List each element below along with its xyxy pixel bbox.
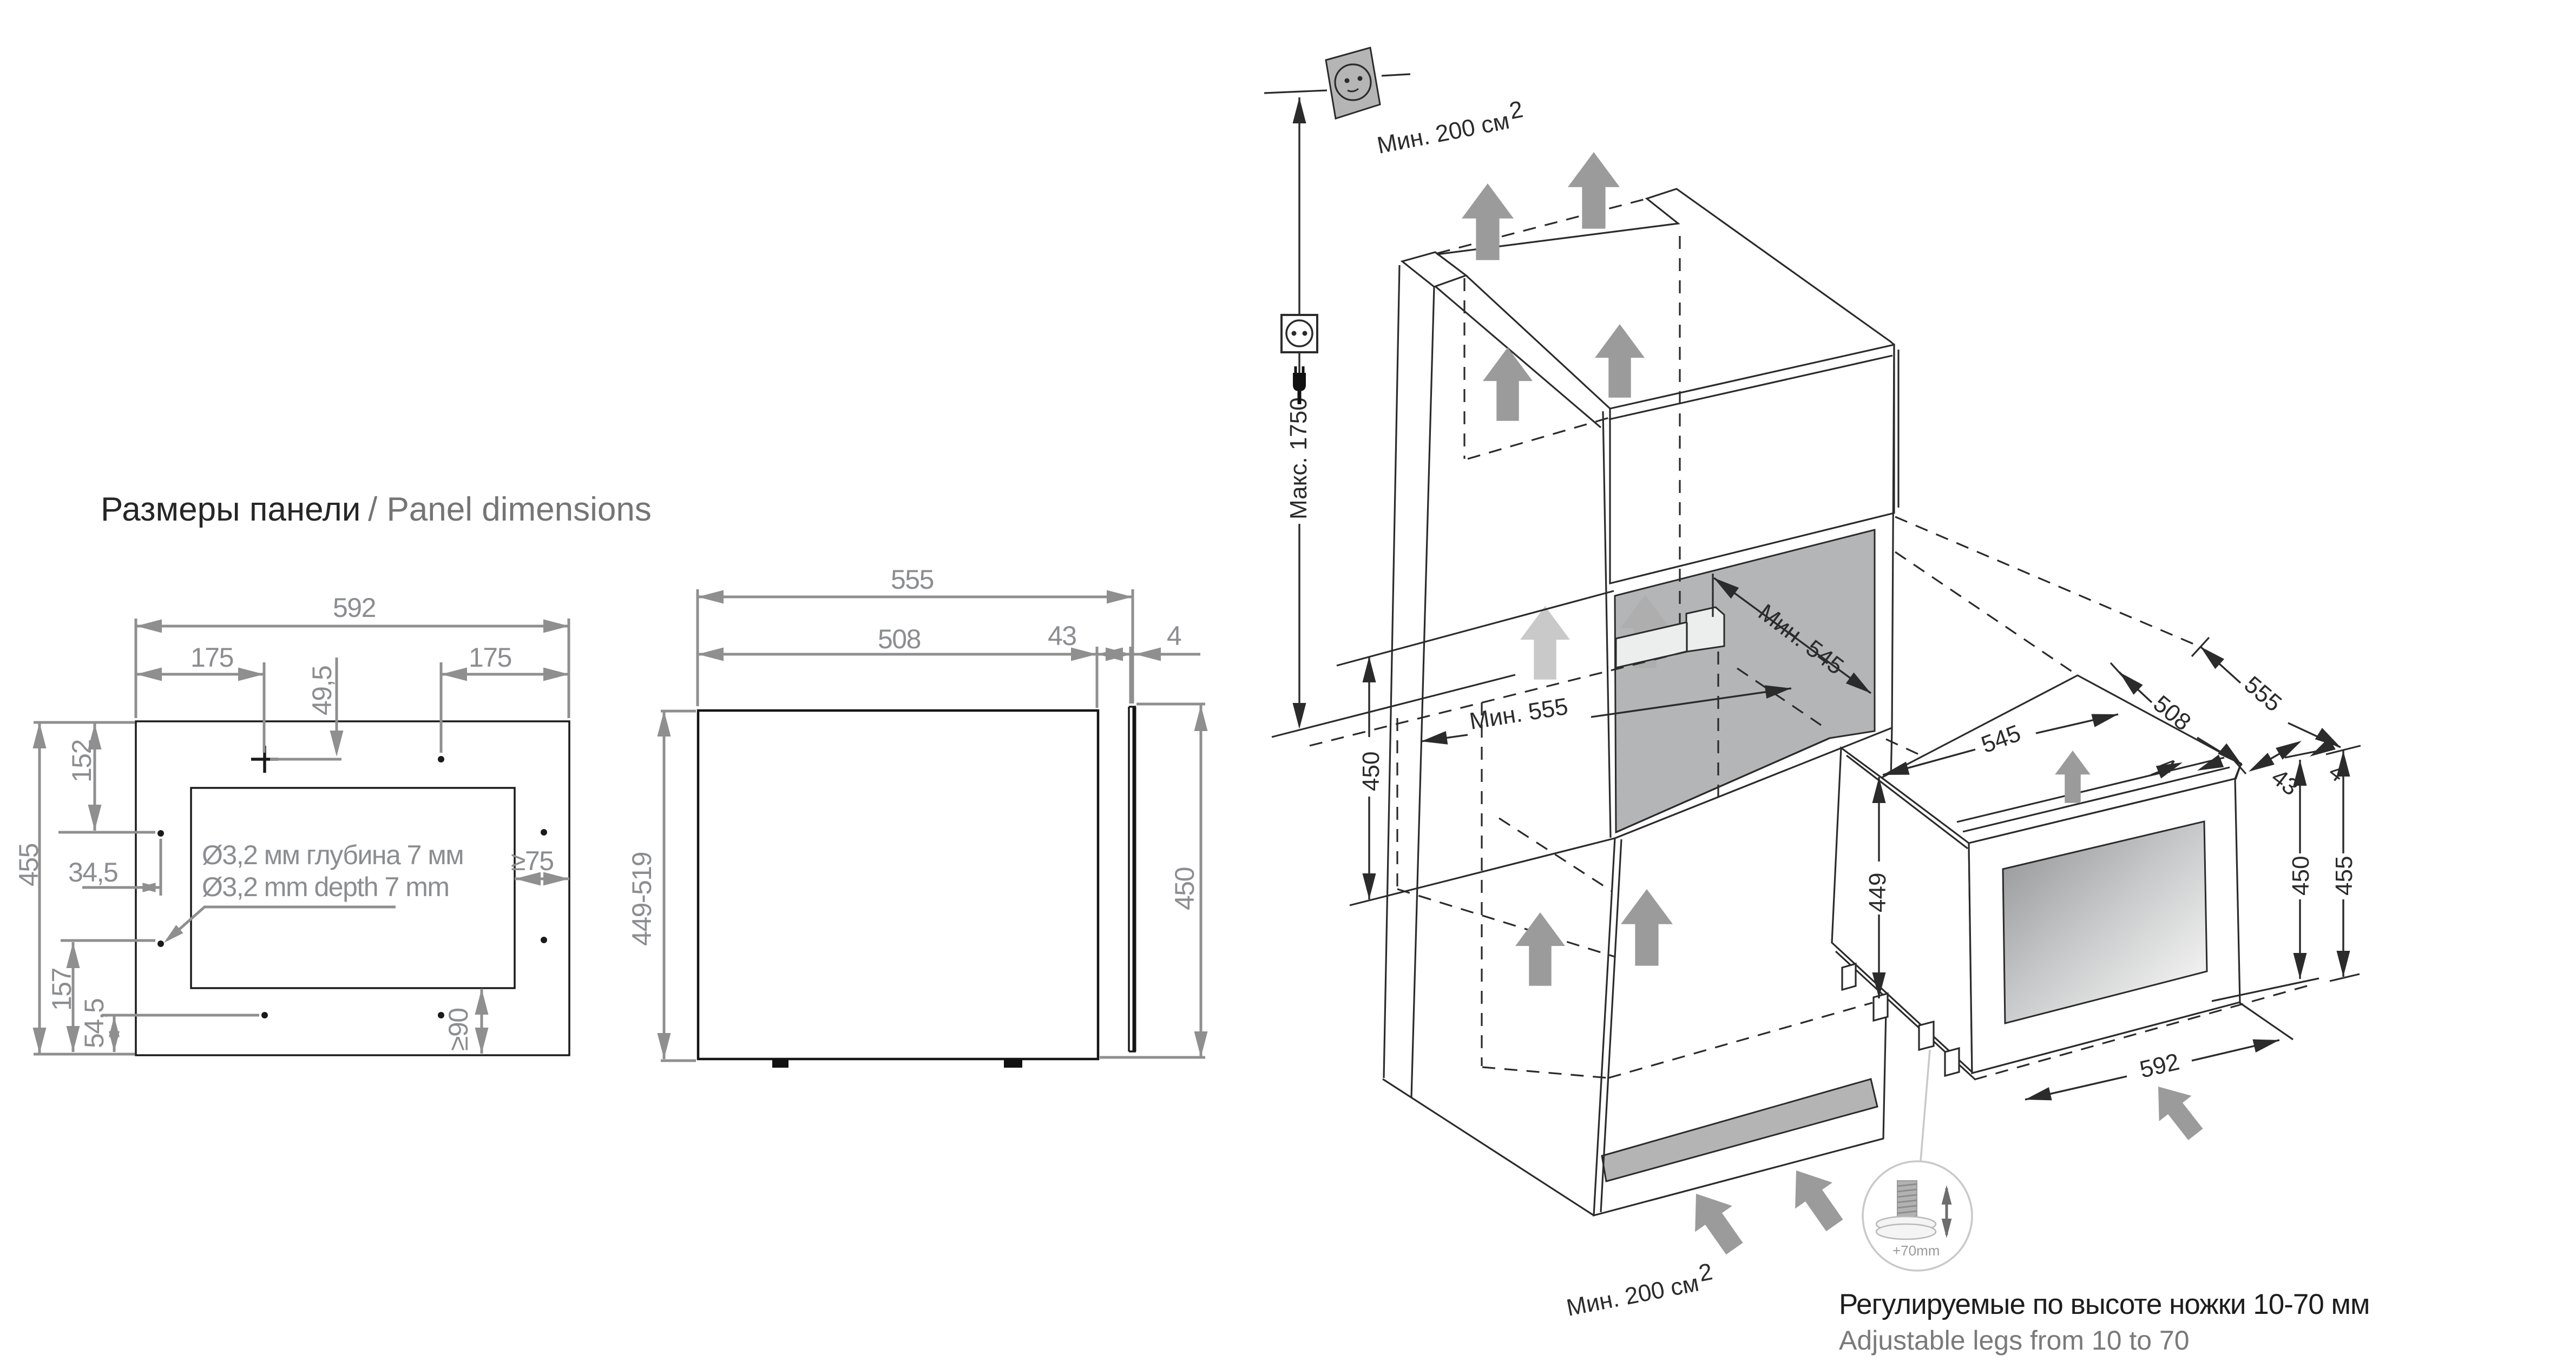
- svg-text:34,5: 34,5: [68, 857, 117, 887]
- svg-text:Регулируемые по высоте ножки 1: Регулируемые по высоте ножки 10-70 мм: [1839, 1288, 2369, 1320]
- svg-text:450: 450: [1169, 867, 1200, 910]
- svg-text:≥90: ≥90: [443, 1008, 474, 1051]
- svg-text:+70mm: +70mm: [1892, 1242, 1940, 1259]
- svg-text:/ Panel dimensions: / Panel dimensions: [368, 491, 652, 528]
- svg-text:450: 450: [1358, 752, 1384, 791]
- svg-text:175: 175: [469, 642, 511, 673]
- svg-text:Мин. 555: Мин. 555: [1468, 693, 1570, 735]
- svg-text:455: 455: [14, 844, 44, 886]
- svg-text:449-519: 449-519: [627, 852, 657, 946]
- svg-text:449: 449: [1864, 873, 1891, 912]
- svg-text:592: 592: [333, 593, 376, 623]
- svg-text:455: 455: [2331, 856, 2357, 896]
- svg-text:2: 2: [1507, 96, 1525, 124]
- svg-text:152: 152: [67, 740, 97, 782]
- svg-text:450: 450: [2288, 856, 2314, 896]
- svg-text:≥75: ≥75: [511, 846, 554, 876]
- svg-text:157: 157: [47, 968, 77, 1011]
- svg-text:4: 4: [1167, 621, 1181, 651]
- svg-text:2: 2: [1697, 1258, 1714, 1287]
- svg-text:508: 508: [878, 624, 921, 654]
- svg-text:Ø3,2 мм глубина 7 мм: Ø3,2 мм глубина 7 мм: [202, 840, 463, 870]
- svg-text:555: 555: [2239, 671, 2287, 717]
- svg-text:592: 592: [2137, 1048, 2182, 1083]
- svg-text:54,5: 54,5: [79, 999, 109, 1048]
- svg-text:555: 555: [891, 564, 934, 595]
- svg-text:Adjustable legs from 10 to 70: Adjustable legs from 10 to 70: [1839, 1325, 2190, 1356]
- svg-text:Размеры панели: Размеры панели: [101, 491, 360, 528]
- svg-text:43: 43: [1048, 621, 1076, 651]
- svg-text:Ø3,2 mm depth 7 mm: Ø3,2 mm depth 7 mm: [202, 872, 449, 902]
- svg-text:175: 175: [190, 642, 233, 673]
- svg-text:Макс. 1750: Макс. 1750: [1285, 397, 1312, 519]
- svg-text:Мин. 200 см: Мин. 200 см: [1565, 1270, 1701, 1321]
- svg-text:Мин. 200 см: Мин. 200 см: [1375, 107, 1512, 159]
- svg-text:49,5: 49,5: [307, 666, 337, 715]
